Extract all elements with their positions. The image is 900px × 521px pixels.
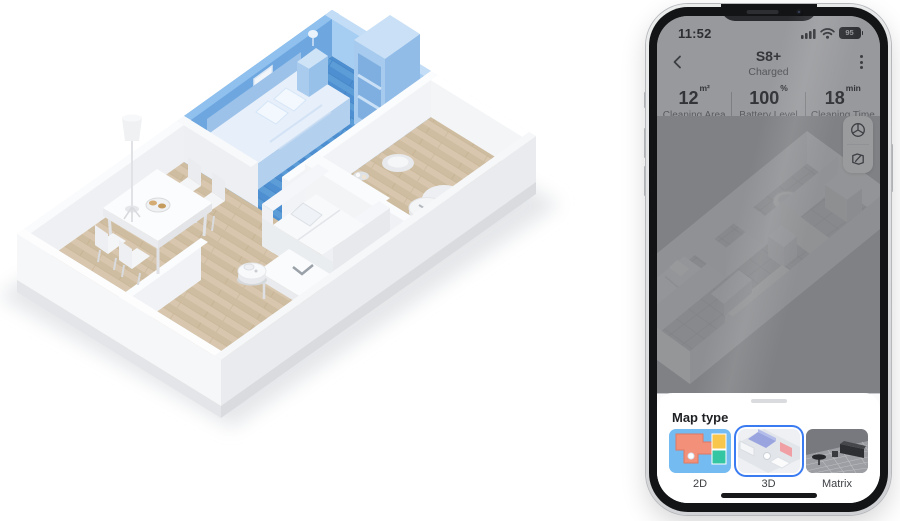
thumbnail-matrix <box>806 429 868 473</box>
drag-handle-icon[interactable] <box>751 399 787 403</box>
map-type-options: 2D <box>667 427 870 490</box>
speaker-icon <box>746 10 778 14</box>
phone-mockup: 11:52 95 <box>646 4 891 515</box>
map-type-option-matrix[interactable]: Matrix <box>804 427 870 490</box>
page: 11:52 95 <box>0 0 900 521</box>
map-type-option-3d[interactable]: 3D <box>736 427 802 490</box>
camera-icon <box>796 9 803 16</box>
map-type-option-2d[interactable]: 2D <box>667 427 733 490</box>
phone-screen: 11:52 95 <box>657 16 880 503</box>
home-indicator[interactable] <box>721 493 817 498</box>
robot-vacuum <box>237 263 267 286</box>
apartment-3d-floorplan <box>0 0 630 521</box>
dim-overlay[interactable] <box>657 16 880 393</box>
pet-bed <box>382 154 414 172</box>
option-label: 2D <box>693 478 707 490</box>
thumbnail-2d <box>669 429 731 473</box>
thumbnail-3d <box>738 429 800 473</box>
map-type-sheet: Map type 2D <box>657 393 880 503</box>
sheet-title: Map type <box>672 410 728 425</box>
option-label: 3D <box>761 478 775 490</box>
option-label: Matrix <box>822 478 852 490</box>
